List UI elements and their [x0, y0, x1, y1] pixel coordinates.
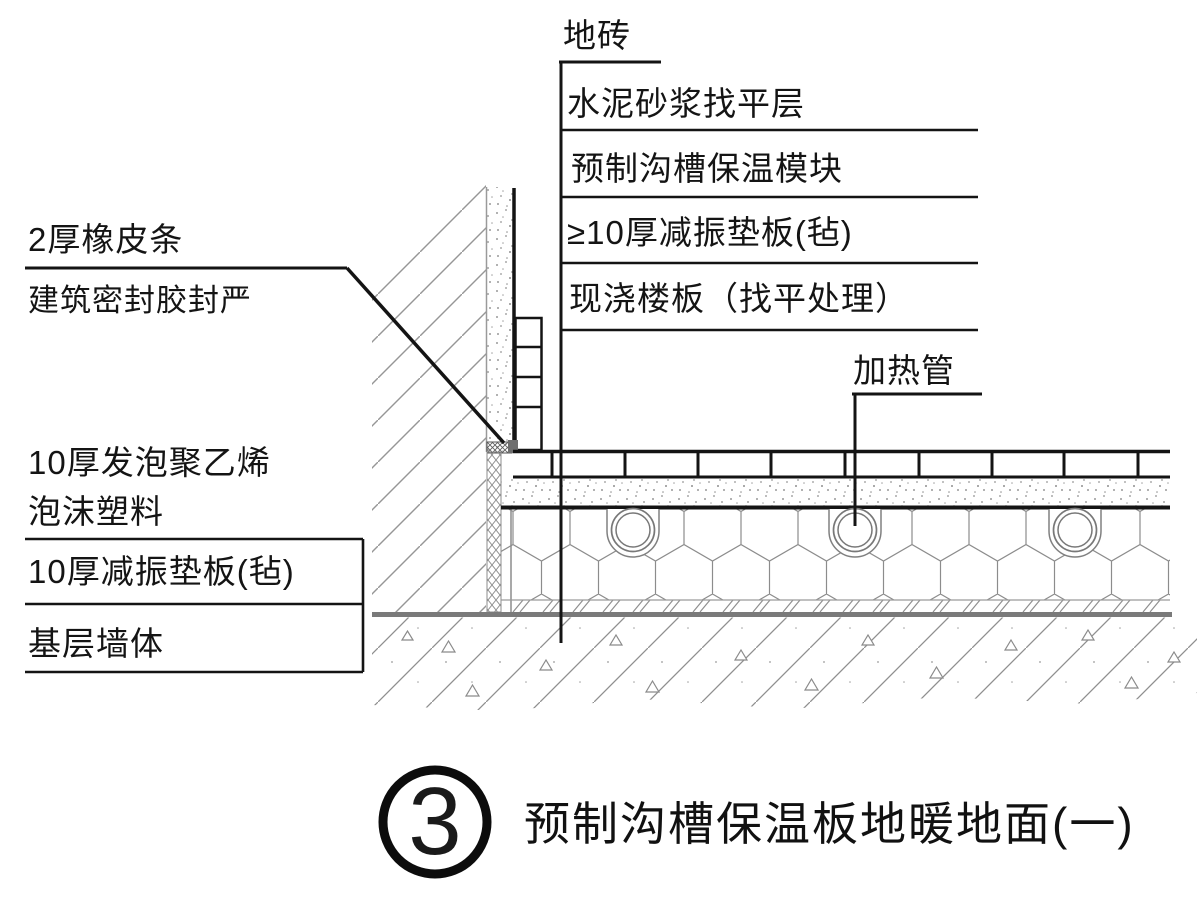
label-damping-pad-min10: ≥10厚减振垫板(毡) [567, 215, 853, 251]
cement-mortar-layer [501, 479, 1170, 506]
detail-number: 3 [385, 762, 485, 882]
label-pe-foam-line2: 泡沫塑料 [28, 494, 164, 530]
wall-plaster-band [486, 187, 514, 452]
wall-skirting-blocks [516, 318, 542, 450]
concrete-slab [372, 618, 1197, 712]
label-cement-mortar-leveling: 水泥砂浆找平层 [567, 86, 805, 122]
label-floor-tile: 地砖 [563, 18, 631, 54]
damping-pad-layer [501, 600, 1170, 612]
detail-title: 预制沟槽保温板地暖地面(一) [524, 798, 1135, 850]
label-base-wall: 基层墙体 [28, 626, 164, 662]
label-damping-pad-10: 10厚减振垫板(毡) [28, 554, 295, 590]
label-pe-foam-line1: 10厚发泡聚乙烯 [28, 445, 271, 481]
label-precast-groove-insulation-module: 预制沟槽保温模块 [571, 151, 843, 187]
heating-pipe [1049, 509, 1101, 558]
base-wall-hatch [372, 176, 486, 613]
construction-detail-drawing: 地砖 水泥砂浆找平层 预制沟槽保温模块 ≥10厚减振垫板(毡) 现浇楼板（找平处… [0, 0, 1200, 900]
label-cast-in-situ-slab: 现浇楼板（找平处理） [569, 281, 909, 317]
label-rubber-strip: 2厚橡皮条 [28, 222, 183, 258]
heating-pipe [607, 509, 659, 558]
label-heating-pipe: 加热管 [853, 353, 955, 389]
floor-tile-layer [513, 452, 1170, 478]
label-sealant: 建筑密封胶封严 [28, 283, 252, 319]
